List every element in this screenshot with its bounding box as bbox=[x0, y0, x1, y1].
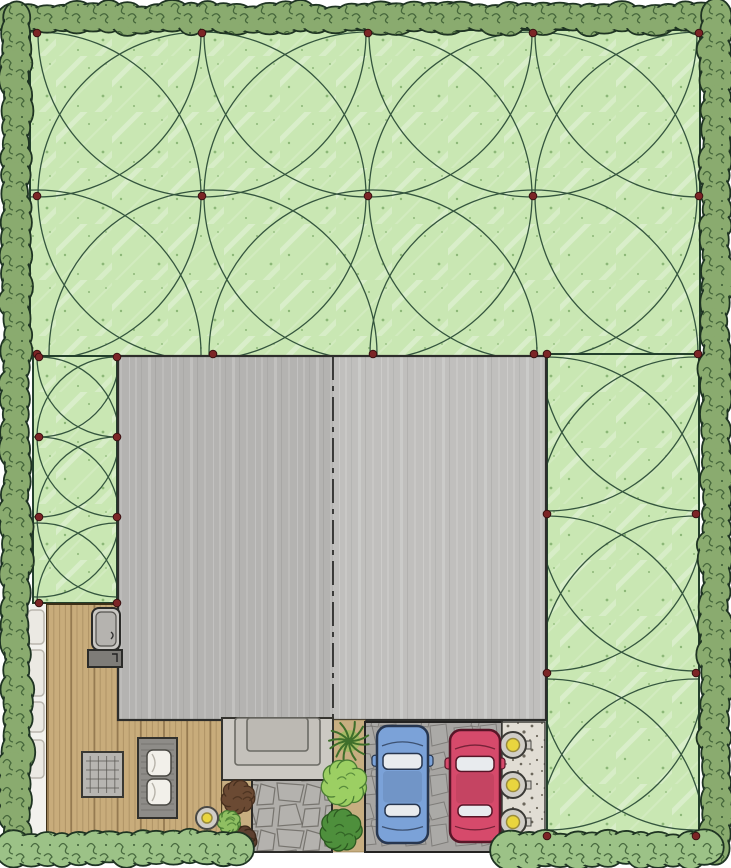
table-top bbox=[82, 752, 123, 797]
sprinkler-head[interactable] bbox=[364, 192, 372, 200]
landscape-plan bbox=[0, 0, 731, 868]
sprinkler-head[interactable] bbox=[33, 29, 41, 37]
bush-core bbox=[326, 815, 356, 845]
roof-texture bbox=[118, 356, 546, 720]
sprinkler-head[interactable] bbox=[35, 353, 43, 361]
grill-lid-inner bbox=[96, 612, 116, 646]
light-bulb bbox=[507, 779, 520, 792]
light-bulb bbox=[507, 739, 520, 752]
sprinkler-head[interactable] bbox=[530, 350, 538, 358]
sprinkler-head[interactable] bbox=[113, 599, 121, 607]
patio-table[interactable] bbox=[82, 752, 123, 797]
rear-window bbox=[458, 805, 492, 817]
house-roof[interactable] bbox=[118, 356, 546, 720]
bush-core bbox=[221, 814, 237, 830]
windshield bbox=[456, 756, 494, 771]
car-roof bbox=[383, 771, 422, 803]
sprinkler-head[interactable] bbox=[113, 353, 121, 361]
loveseat-cushion bbox=[147, 750, 171, 776]
sprinkler-head[interactable] bbox=[364, 29, 372, 37]
sprinkler-head[interactable] bbox=[543, 510, 551, 518]
sprinkler-head[interactable] bbox=[113, 513, 121, 521]
loveseat-cushion bbox=[147, 779, 171, 805]
plan-canvas bbox=[0, 0, 731, 868]
sprinkler-head[interactable] bbox=[543, 832, 551, 840]
sprinkler-head[interactable] bbox=[35, 433, 43, 441]
walkway-texture bbox=[252, 780, 332, 852]
stoop-steps[interactable] bbox=[222, 718, 333, 780]
deck-light[interactable] bbox=[196, 807, 218, 829]
car-blue-sedan[interactable] bbox=[372, 726, 433, 843]
sprinkler-head[interactable] bbox=[35, 599, 43, 607]
bush-core bbox=[328, 767, 361, 800]
sprinkler-head[interactable] bbox=[113, 433, 121, 441]
loveseat[interactable] bbox=[138, 738, 177, 818]
sprinkler-head[interactable] bbox=[198, 192, 206, 200]
stoop-inner bbox=[247, 718, 308, 751]
sprinkler-head[interactable] bbox=[369, 350, 377, 358]
bbq-grill[interactable] bbox=[88, 608, 122, 667]
sprinkler-head[interactable] bbox=[35, 513, 43, 521]
windshield bbox=[383, 753, 422, 769]
sprinkler-head[interactable] bbox=[543, 669, 551, 677]
sprinkler-head[interactable] bbox=[694, 350, 702, 358]
sprinkler-head[interactable] bbox=[692, 669, 700, 677]
sprinkler-head[interactable] bbox=[695, 29, 703, 37]
sprinkler-head[interactable] bbox=[692, 510, 700, 518]
fern-center bbox=[346, 738, 352, 744]
stepping-stone[interactable] bbox=[28, 610, 44, 644]
light-bulb bbox=[507, 816, 520, 829]
sprinkler-head[interactable] bbox=[692, 832, 700, 840]
sprinkler-head[interactable] bbox=[529, 192, 537, 200]
sprinkler-head[interactable] bbox=[209, 350, 217, 358]
rear-window bbox=[385, 804, 420, 816]
car-roof bbox=[456, 773, 494, 803]
flagstone-walkway[interactable] bbox=[252, 780, 332, 852]
bush-small-green[interactable] bbox=[217, 811, 240, 834]
sprinkler-head[interactable] bbox=[33, 192, 41, 200]
sprinkler-head[interactable] bbox=[529, 29, 537, 37]
sprinkler-head[interactable] bbox=[695, 192, 703, 200]
light-bulb bbox=[202, 813, 212, 823]
sprinkler-head[interactable] bbox=[198, 29, 206, 37]
car-red-suv[interactable] bbox=[445, 730, 505, 842]
sprinkler-head[interactable] bbox=[543, 350, 551, 358]
